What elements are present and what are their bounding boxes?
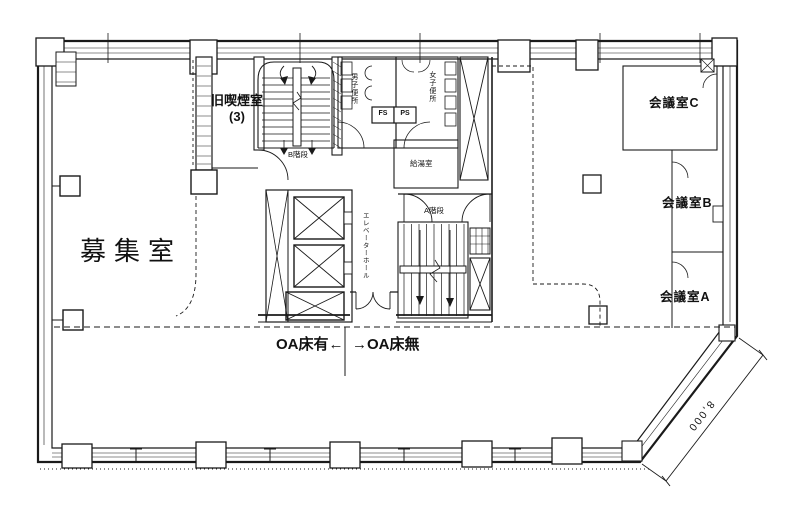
room-label-meeting-b: 会議室B xyxy=(662,196,713,210)
room-label-meeting-a: 会議室A xyxy=(660,290,711,304)
stair-a-block xyxy=(398,194,492,318)
label-oa-floor-yes: OA床有← xyxy=(276,337,344,354)
room-label-main: 募集室 xyxy=(80,238,182,267)
label-stair-b: B階段 xyxy=(288,151,308,159)
label-oa-floor-no: →OA床無 xyxy=(352,337,420,354)
duct-shaft xyxy=(460,57,492,322)
label-womens-wc: 女子便所 xyxy=(428,71,436,103)
label-kitchenette: 給湯室 xyxy=(410,160,433,168)
label-fs-shaft: FS xyxy=(374,110,392,118)
elevator-bank xyxy=(266,190,352,322)
room-label-smoking-count: (3) xyxy=(201,110,273,125)
room-label-meeting-c: 会議室C xyxy=(649,96,700,110)
label-elevator-hall: エレベーターホール xyxy=(361,212,368,280)
hall-double-door xyxy=(350,292,398,309)
label-mens-wc: 男子便所 xyxy=(350,73,358,105)
room-label-smoking: 旧喫煙室 xyxy=(201,94,273,109)
label-ps-shaft: PS xyxy=(396,110,414,118)
label-stair-a: A階段 xyxy=(424,207,444,215)
floor-plan: 募集室 旧喫煙室 (3) 会議室C 会議室B 会議室A B階段 A階段 男子便所… xyxy=(0,0,787,528)
